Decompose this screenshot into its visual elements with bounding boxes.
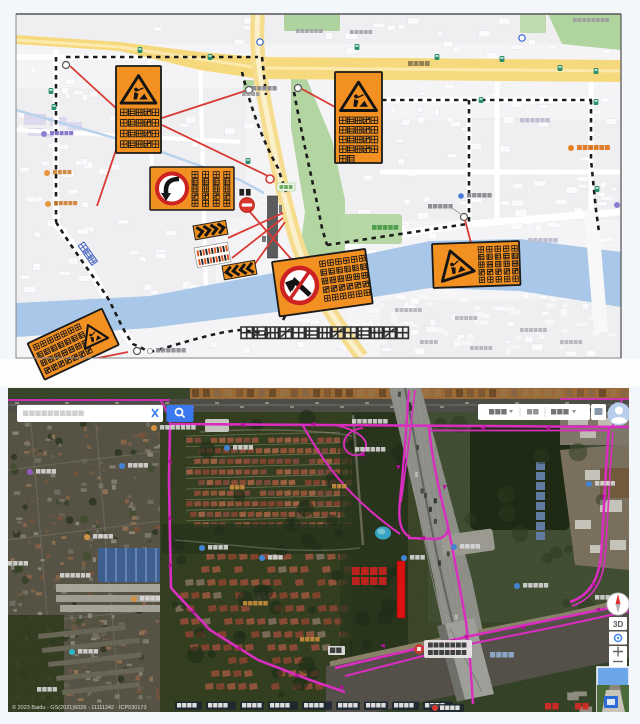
svg-text:3D: 3D: [613, 620, 623, 629]
